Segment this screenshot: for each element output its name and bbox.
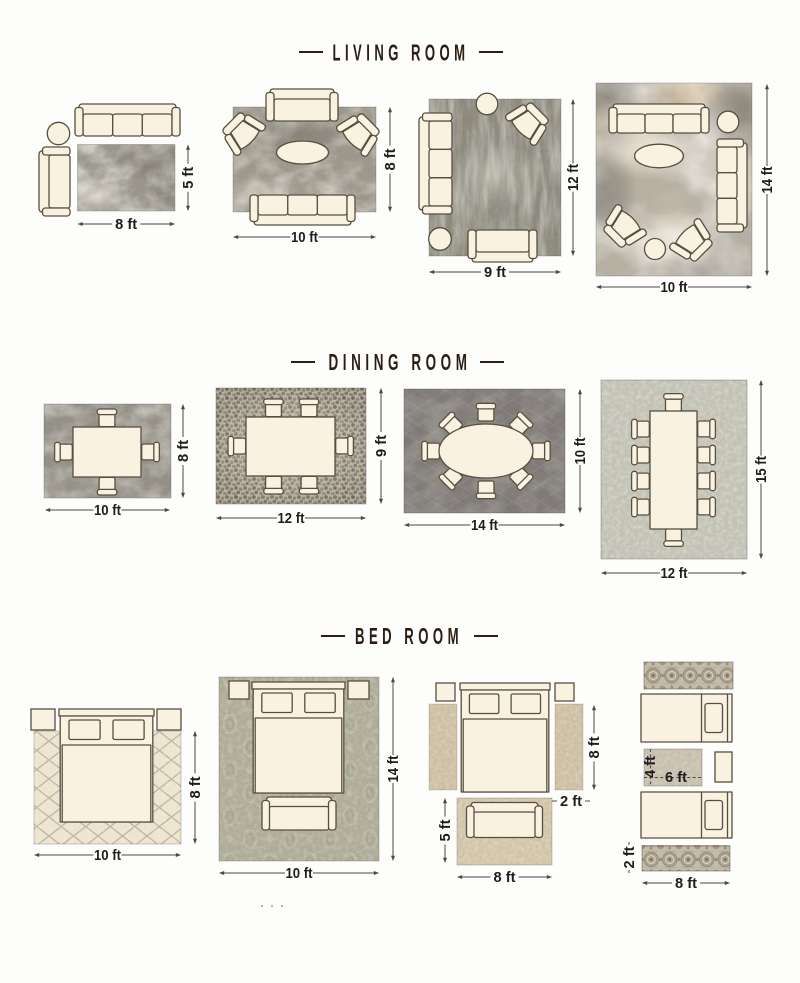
svg-text:8 ft: 8 ft (176, 440, 192, 462)
svg-text:10 ft: 10 ft (573, 437, 589, 464)
svg-text:8 ft: 8 ft (188, 776, 204, 798)
svg-text:BED ROOM: BED ROOM (355, 623, 463, 649)
svg-text:8 ft: 8 ft (115, 217, 137, 233)
svg-text:12 ft: 12 ft (661, 566, 688, 582)
svg-text:8 ft: 8 ft (587, 736, 603, 758)
svg-text:2 ft: 2 ft (560, 794, 582, 810)
svg-text:LIVING ROOM: LIVING ROOM (333, 40, 470, 66)
svg-text:12 ft: 12 ft (278, 511, 305, 527)
svg-text:9 ft: 9 ft (374, 435, 390, 457)
svg-text:8 ft: 8 ft (383, 148, 399, 170)
svg-text:DINING ROOM: DINING ROOM (329, 349, 472, 375)
svg-text:10 ft: 10 ft (291, 230, 318, 246)
svg-text:10 ft: 10 ft (286, 866, 313, 882)
svg-text:4 ft: 4 ft (643, 756, 659, 778)
svg-text:2 ft: 2 ft (622, 846, 638, 868)
svg-text:8 ft: 8 ft (494, 870, 516, 886)
svg-text:14 ft: 14 ft (471, 518, 498, 534)
svg-text:6 ft: 6 ft (665, 770, 687, 786)
svg-text:12 ft: 12 ft (566, 164, 582, 191)
svg-text:10 ft: 10 ft (94, 848, 121, 864)
svg-text:15 ft: 15 ft (754, 456, 770, 483)
svg-text:9 ft: 9 ft (484, 265, 506, 281)
svg-text:10 ft: 10 ft (94, 503, 121, 519)
svg-text:5 ft: 5 ft (181, 167, 197, 189)
svg-text:14 ft: 14 ft (386, 755, 402, 782)
svg-text:14 ft: 14 ft (760, 166, 776, 193)
svg-text:8 ft: 8 ft (675, 876, 697, 892)
svg-text:10 ft: 10 ft (661, 280, 688, 296)
svg-text:5 ft: 5 ft (438, 819, 454, 841)
